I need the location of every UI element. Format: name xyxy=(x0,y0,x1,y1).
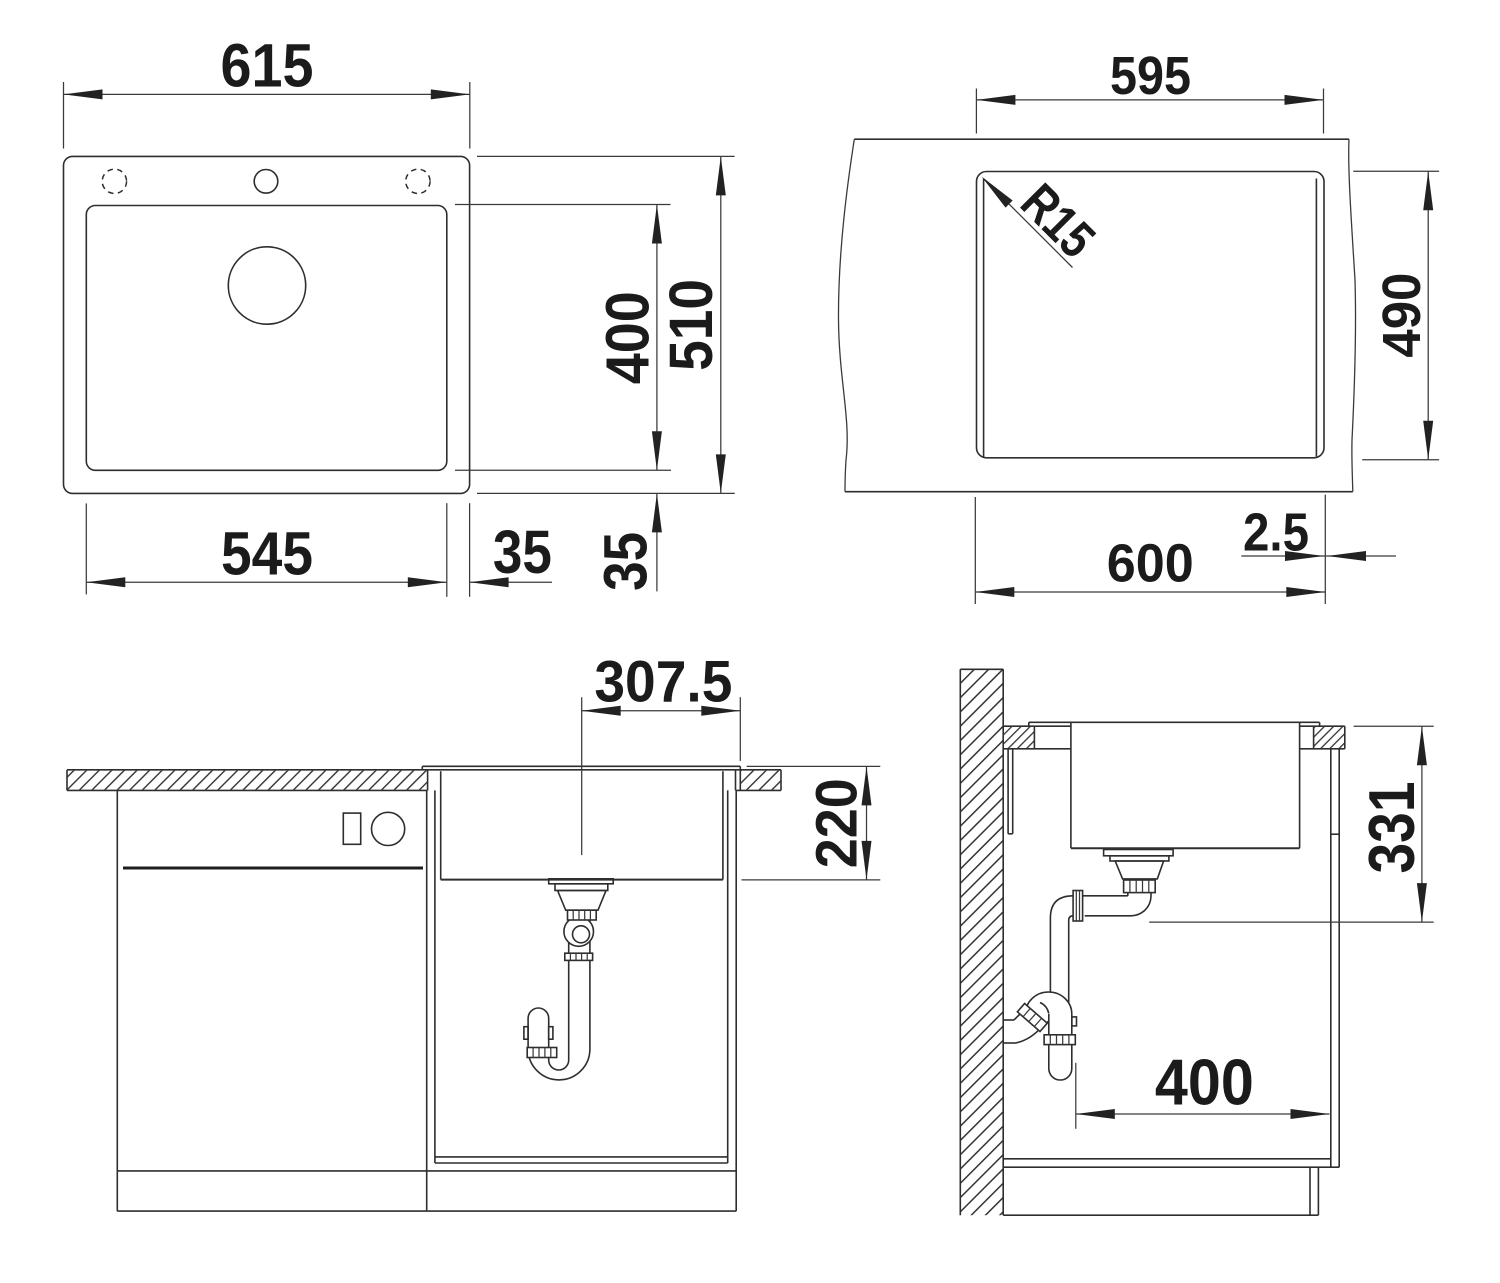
svg-text:2.5: 2.5 xyxy=(1243,503,1309,563)
svg-text:331: 331 xyxy=(1355,782,1428,874)
svg-text:600: 600 xyxy=(1107,533,1194,593)
svg-text:35: 35 xyxy=(493,518,552,586)
svg-text:545: 545 xyxy=(221,519,313,587)
svg-text:400: 400 xyxy=(1155,1045,1254,1118)
svg-text:595: 595 xyxy=(1110,46,1191,106)
svg-text:510: 510 xyxy=(657,279,725,371)
svg-text:35: 35 xyxy=(592,532,660,591)
svg-text:400: 400 xyxy=(594,291,662,384)
svg-text:220: 220 xyxy=(805,778,870,868)
svg-text:615: 615 xyxy=(221,32,314,100)
svg-text:307.5: 307.5 xyxy=(594,650,732,715)
svg-text:490: 490 xyxy=(1372,273,1432,358)
